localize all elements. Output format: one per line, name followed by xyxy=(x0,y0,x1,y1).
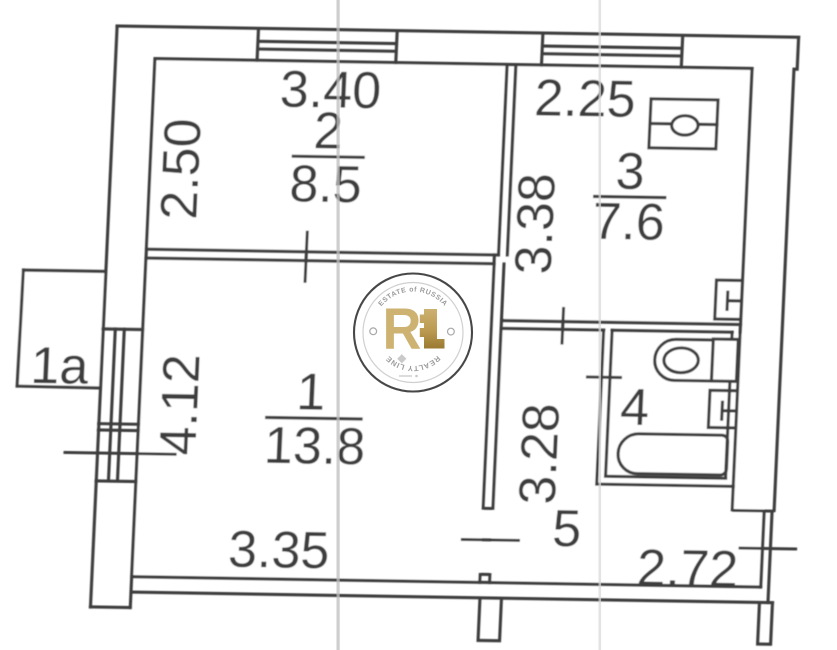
svg-text:2.50: 2.50 xyxy=(150,118,213,220)
svg-text:2.25: 2.25 xyxy=(533,69,637,129)
svg-text:3.28: 3.28 xyxy=(509,403,572,505)
svg-text:8.5: 8.5 xyxy=(288,155,363,214)
svg-text:R: R xyxy=(383,296,422,361)
svg-text:3.38: 3.38 xyxy=(504,173,567,275)
svg-text:7.6: 7.6 xyxy=(591,193,666,252)
svg-text:3.35: 3.35 xyxy=(227,521,331,581)
svg-text:5: 5 xyxy=(551,500,583,558)
svg-text:4: 4 xyxy=(619,379,651,437)
svg-text:1: 1 xyxy=(295,363,327,421)
svg-text:2.72: 2.72 xyxy=(636,540,740,600)
svg-text:4.12: 4.12 xyxy=(149,354,212,456)
svg-text:1a: 1a xyxy=(29,337,90,396)
svg-text:13.8: 13.8 xyxy=(263,417,367,477)
